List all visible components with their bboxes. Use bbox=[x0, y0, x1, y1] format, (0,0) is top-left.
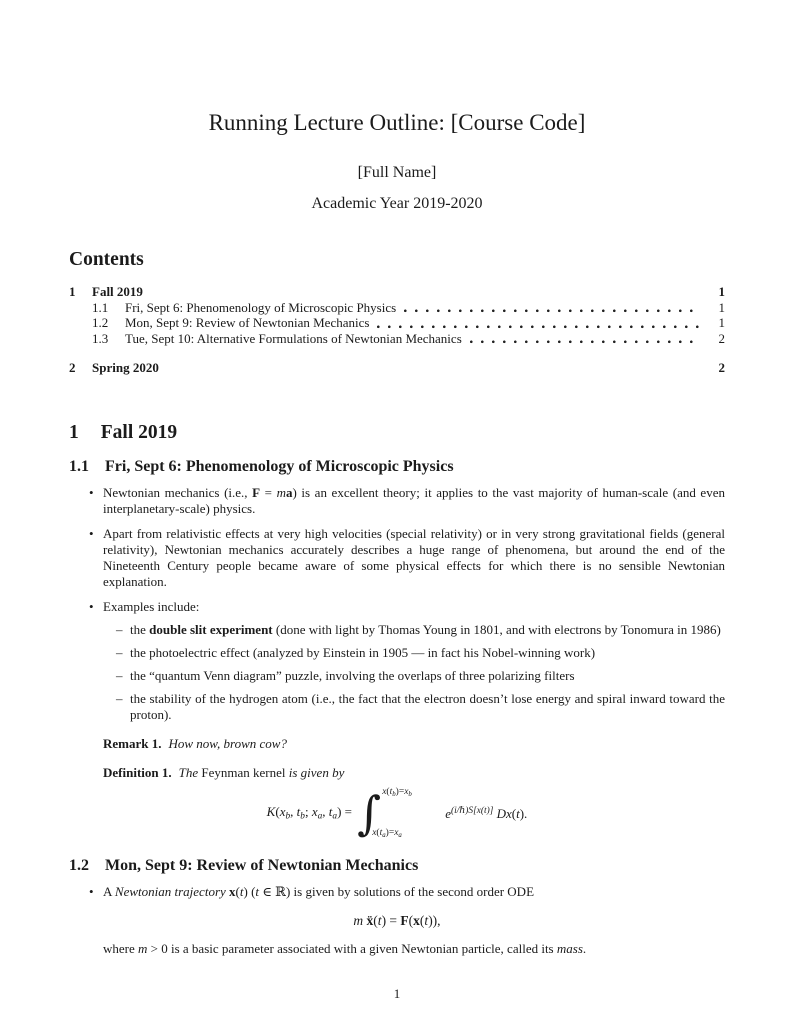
toc-entry-page: 1 bbox=[709, 300, 725, 316]
bullet-relativistic-effects: Apart from relativistic effects at very … bbox=[69, 526, 725, 590]
toc-entry-number: 1.2 bbox=[92, 315, 125, 331]
document-content: Running Lecture Outline: [Course Code] [… bbox=[0, 0, 794, 957]
document-date: Academic Year 2019-2020 bbox=[69, 195, 725, 213]
subsection-title: Mon, Sept 9: Review of Newtonian Mechani… bbox=[105, 857, 418, 875]
toc-entry-page: 1 bbox=[709, 315, 725, 331]
document-author: [Full Name] bbox=[69, 164, 725, 182]
toc-entry-label: Mon, Sept 9: Review of Newtonian Mechani… bbox=[125, 315, 369, 331]
paragraph-mass: where m > 0 is a basic parameter associa… bbox=[69, 941, 725, 957]
definition-label: Definition 1. bbox=[103, 765, 172, 780]
toc-entry-label: Tue, Sept 10: Alternative Formulations o… bbox=[125, 331, 462, 347]
subbullet-quantum-venn: the “quantum Venn diagram” puzzle, invol… bbox=[69, 668, 725, 684]
toc-leader-dots bbox=[404, 309, 701, 313]
toc-entry-number: 2 bbox=[69, 360, 92, 376]
remark-body: How now, brown cow? bbox=[169, 736, 287, 751]
toc-entry-label: Fri, Sept 6: Phenomenology of Microscopi… bbox=[125, 300, 396, 316]
toc-entry-newtonian-review: 1.2 Mon, Sept 9: Review of Newtonian Mec… bbox=[69, 315, 725, 331]
toc-entry-page: 2 bbox=[709, 331, 725, 347]
toc-entry-number: 1.1 bbox=[92, 300, 125, 316]
toc-entry-spring-2020: 2 Spring 2020 2 bbox=[69, 360, 725, 376]
section-title: Fall 2019 bbox=[101, 422, 177, 444]
toc-entry-number: 1.3 bbox=[92, 331, 125, 347]
toc-entry-fall-2019: 1 Fall 2019 1 bbox=[69, 284, 725, 300]
section-heading-fall-2019: 1 Fall 2019 bbox=[69, 422, 725, 444]
toc-leader-dots bbox=[377, 325, 701, 329]
definition-block: Definition 1.The Feynman kernel is given… bbox=[69, 765, 725, 781]
integral-upper-limit: x(tb)=xb bbox=[382, 788, 439, 799]
subsection-number: 1.1 bbox=[69, 458, 89, 476]
formula-integrand: e(i/ℏ)S[x(t)] Dx(t). bbox=[445, 807, 527, 820]
toc-entry-page: 1 bbox=[709, 284, 725, 300]
page-number: 1 bbox=[0, 986, 794, 1002]
table-of-contents: 1 Fall 2019 1 1.1 Fri, Sept 6: Phenomeno… bbox=[69, 284, 725, 376]
toc-entry-number: 1 bbox=[69, 284, 92, 300]
section-number: 1 bbox=[69, 422, 79, 444]
toc-entry-alternative-formulations: 1.3 Tue, Sept 10: Alternative Formulatio… bbox=[69, 331, 725, 347]
subsection-heading-newtonian-review: 1.2 Mon, Sept 9: Review of Newtonian Mec… bbox=[69, 857, 725, 875]
formula-lhs: K(xb, tb; xa, ta) = bbox=[267, 805, 356, 822]
integral-lower-limit: x(ta)=xa bbox=[372, 829, 439, 840]
subsection-heading-phenomenology: 1.1 Fri, Sept 6: Phenomenology of Micros… bbox=[69, 458, 725, 476]
toc-entry-label: Spring 2020 bbox=[92, 360, 709, 376]
remark-block: Remark 1.How now, brown cow? bbox=[69, 736, 725, 752]
definition-body: The Feynman kernel is given by bbox=[179, 765, 345, 780]
bullet-newtonian-mechanics: Newtonian mechanics (i.e., F = ma) is an… bbox=[69, 485, 725, 517]
contents-heading: Contents bbox=[69, 249, 725, 271]
bullet-examples-include: Examples include: bbox=[69, 599, 725, 615]
toc-entry-phenomenology: 1.1 Fri, Sept 6: Phenomenology of Micros… bbox=[69, 300, 725, 316]
newton-ode-formula: m ẍ(t) = F(x(t)), bbox=[69, 912, 725, 930]
feynman-kernel-formula: K(xb, tb; xa, ta) = ∫ x(tb)=xb x(ta)=xa … bbox=[69, 785, 725, 843]
toc-leader-dots bbox=[470, 340, 701, 344]
integral-limits: x(tb)=xb x(ta)=xa bbox=[381, 788, 439, 840]
remark-label: Remark 1. bbox=[103, 736, 162, 751]
bullet-newtonian-trajectory: A Newtonian trajectory x(t) (t ∈ ℝ) is g… bbox=[69, 884, 725, 900]
subbullet-hydrogen-stability: the stability of the hydrogen atom (i.e.… bbox=[69, 691, 725, 723]
toc-entry-label: Fall 2019 bbox=[92, 284, 709, 300]
document-page: Running Lecture Outline: [Course Code] [… bbox=[0, 0, 794, 1028]
subsection-title: Fri, Sept 6: Phenomenology of Microscopi… bbox=[105, 458, 454, 476]
subbullet-photoelectric: the photoelectric effect (analyzed by Ei… bbox=[69, 645, 725, 661]
integral: ∫ x(tb)=xb x(ta)=xa bbox=[357, 788, 439, 840]
document-title: Running Lecture Outline: [Course Code] bbox=[69, 110, 725, 136]
subbullet-double-slit: the double slit experiment (done with li… bbox=[69, 622, 725, 638]
subsection-number: 1.2 bbox=[69, 857, 89, 875]
toc-entry-page: 2 bbox=[709, 360, 725, 376]
